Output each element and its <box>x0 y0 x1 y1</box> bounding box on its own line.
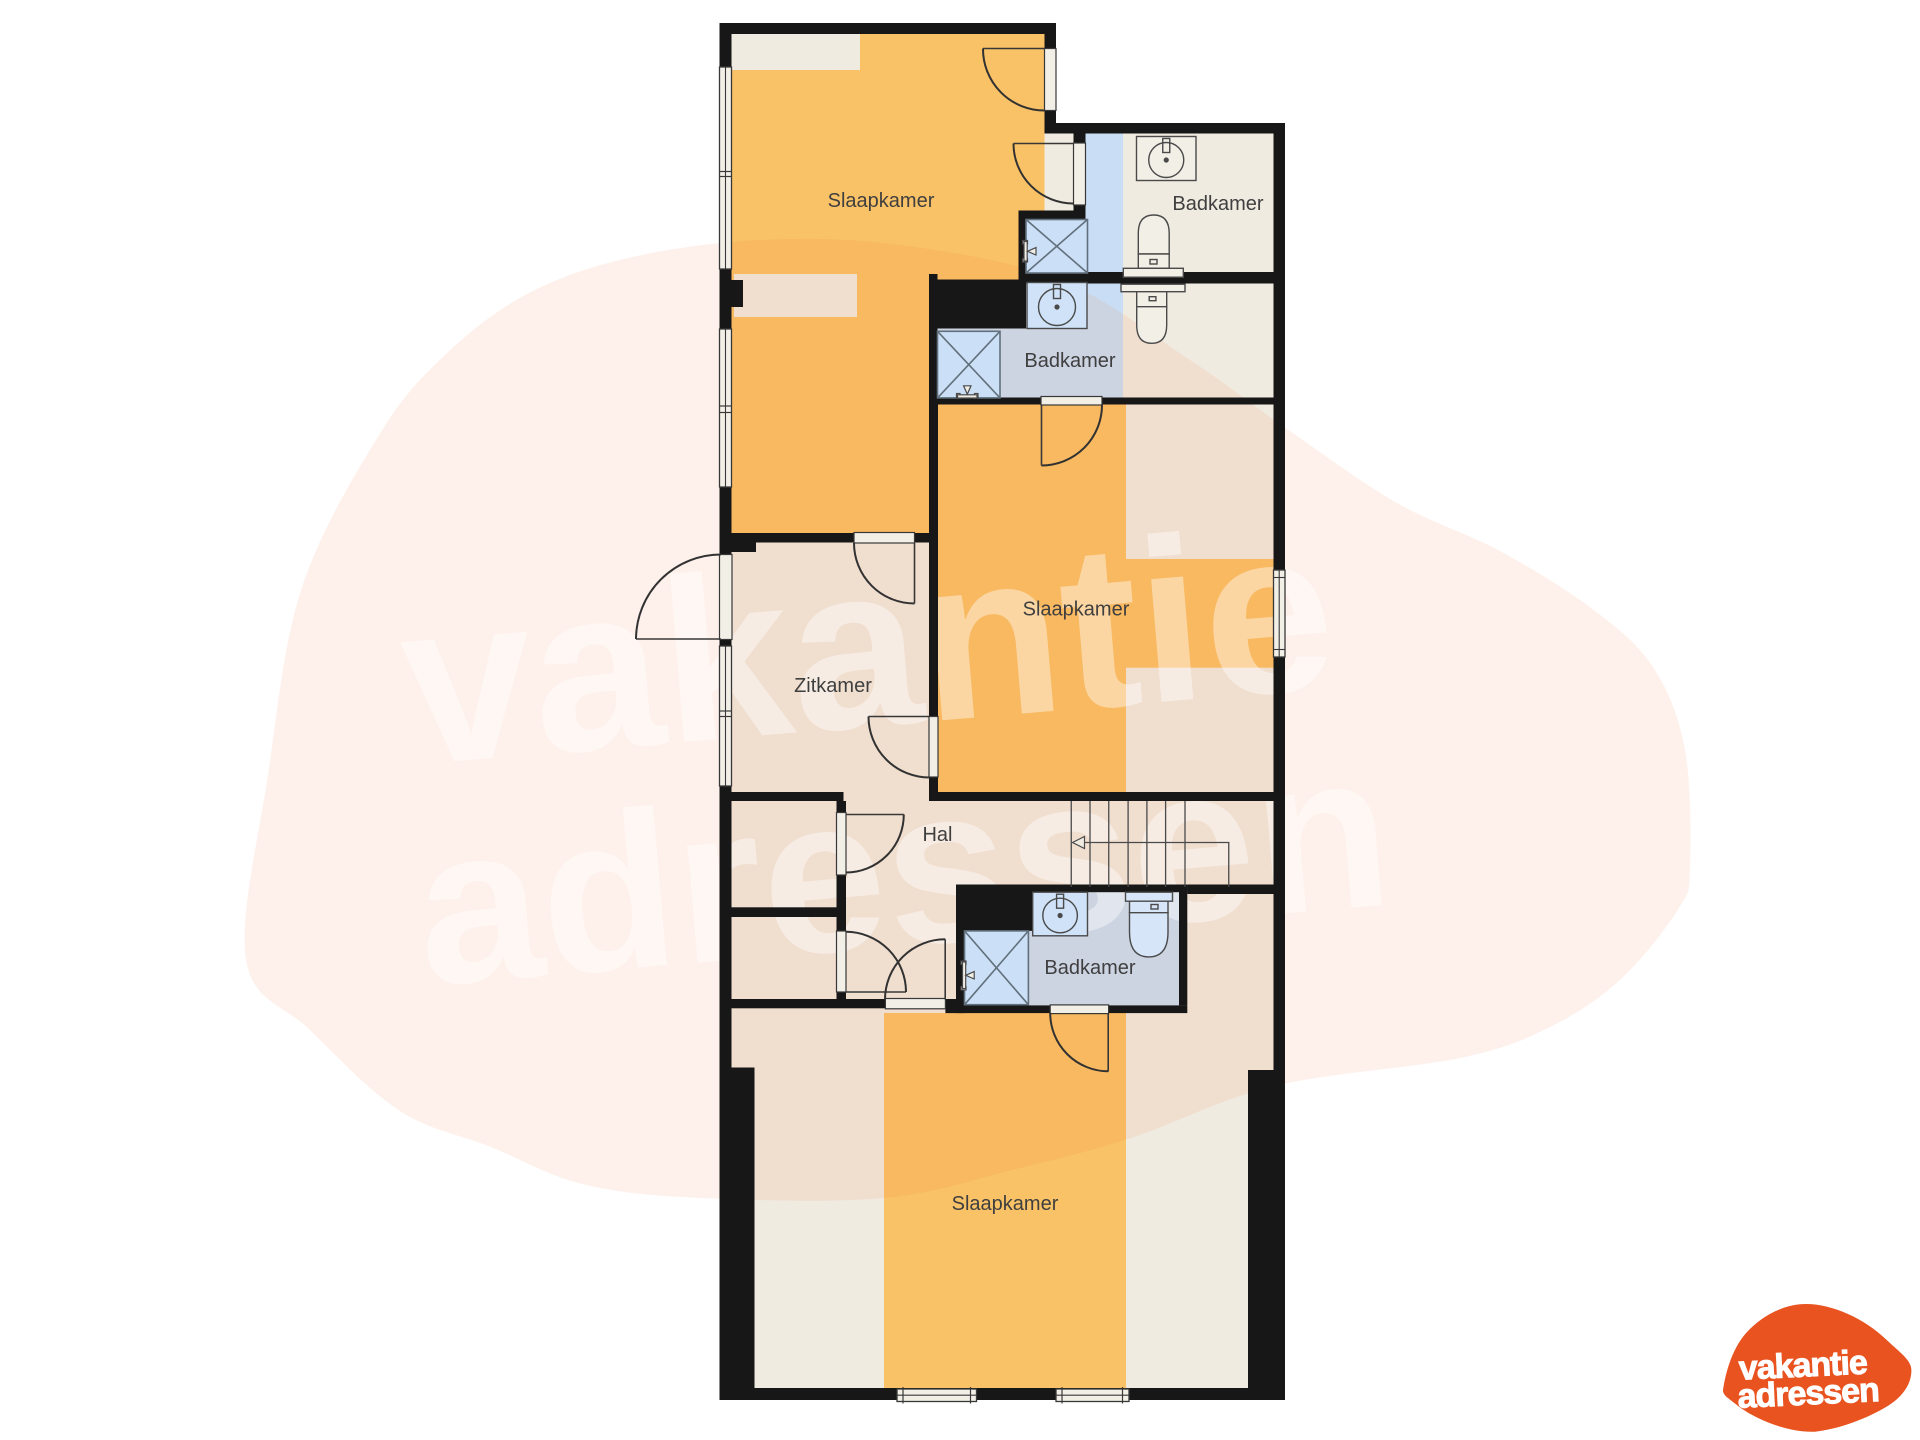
svg-text:Badkamer: Badkamer <box>1024 350 1115 372</box>
svg-text:Badkamer: Badkamer <box>1044 957 1135 979</box>
svg-text:Badkamer: Badkamer <box>1172 193 1263 215</box>
svg-text:Hal: Hal <box>922 824 952 846</box>
svg-text:adressen: adressen <box>1737 1371 1880 1416</box>
svg-text:Slaapkamer: Slaapkamer <box>828 190 935 212</box>
svg-text:Zitkamer: Zitkamer <box>794 675 872 697</box>
svg-text:Slaapkamer: Slaapkamer <box>1023 599 1130 621</box>
svg-text:Slaapkamer: Slaapkamer <box>952 1193 1059 1215</box>
